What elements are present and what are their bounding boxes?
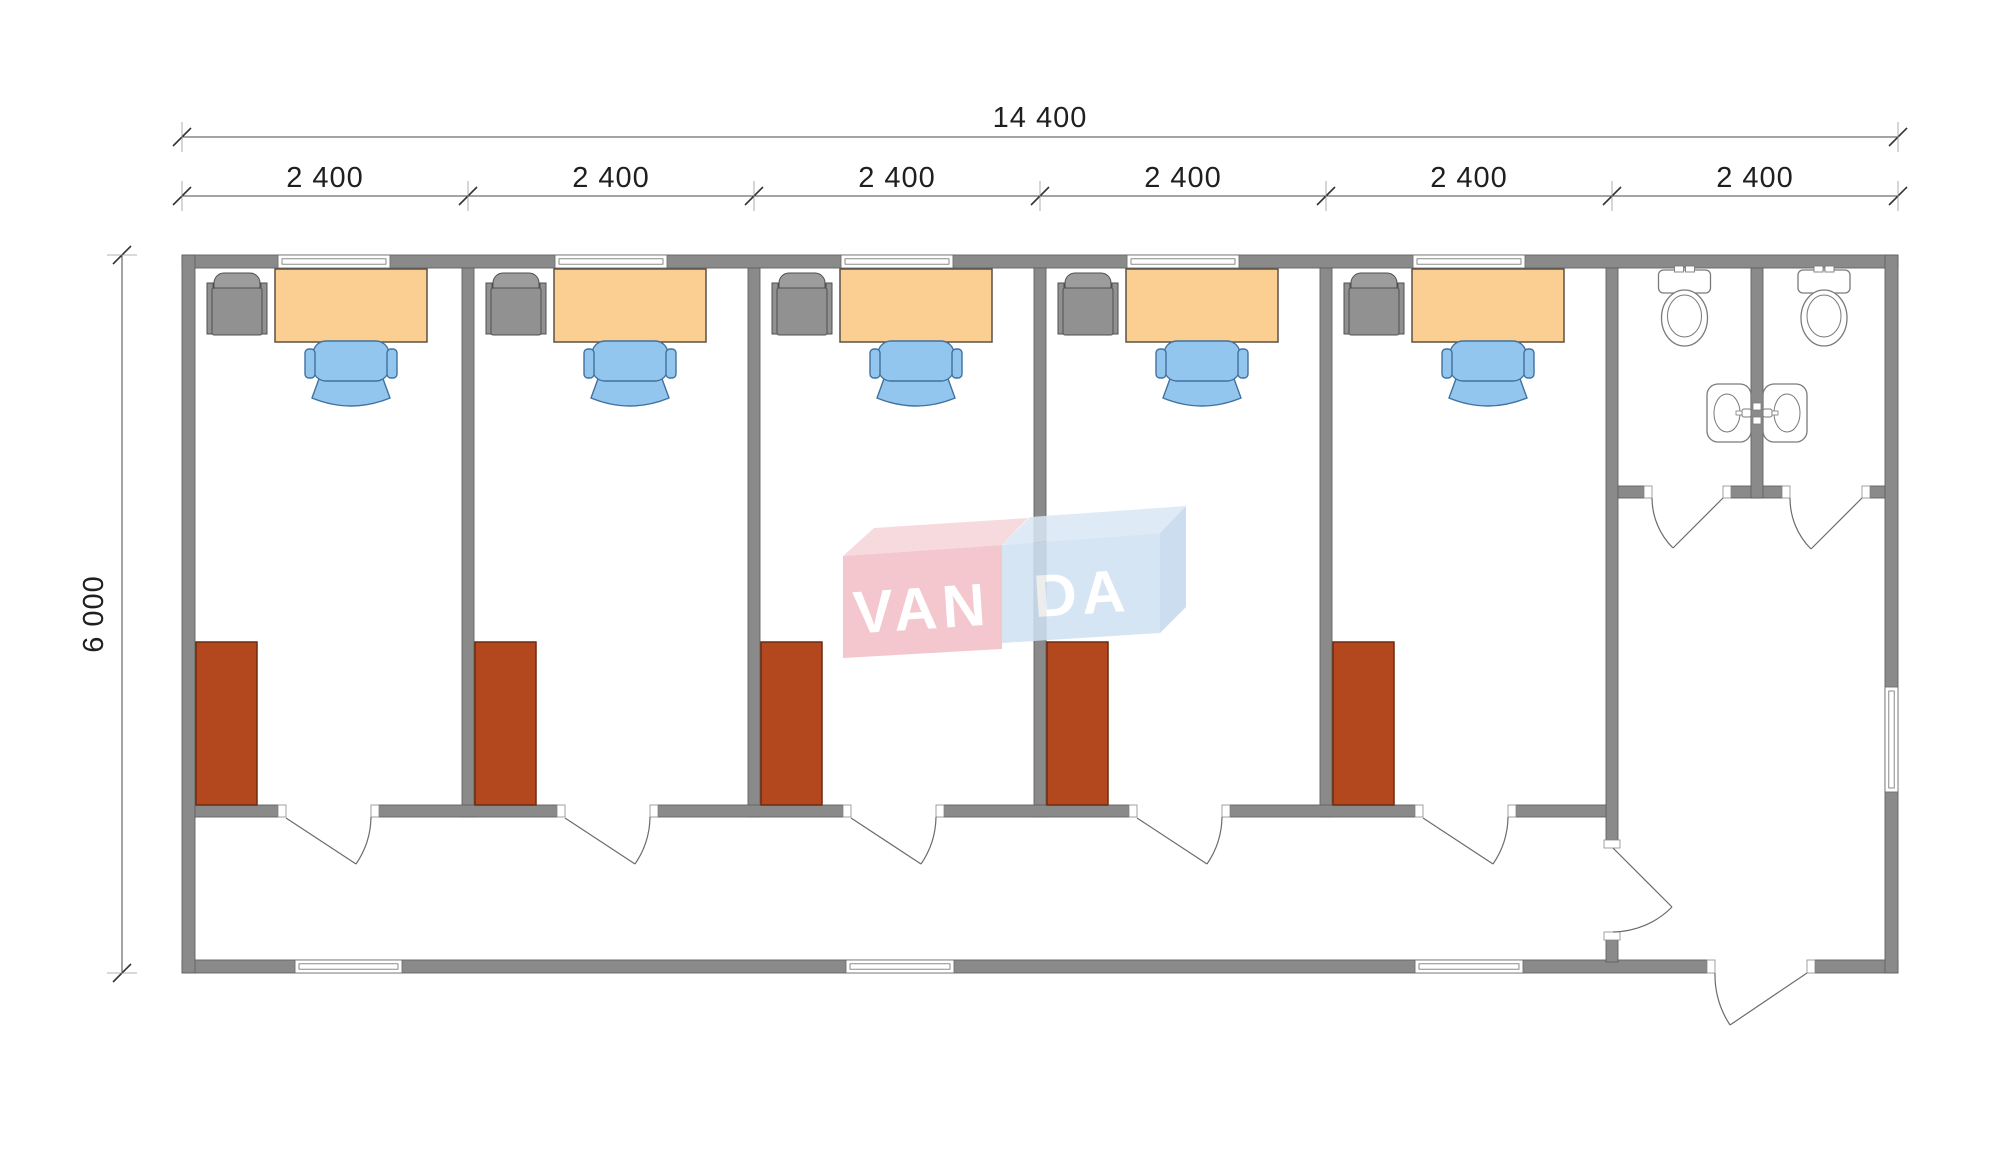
door-swing [1673,498,1723,548]
partition-wall [462,268,474,817]
door-swing [1207,817,1222,864]
toilet-stall-wall [1870,486,1885,498]
door-swing [1715,973,1730,1025]
cabinet [491,288,541,335]
corridor-wall [944,805,1129,817]
door-swing [565,818,635,864]
door-jamb [1129,805,1137,817]
door-jamb [1415,805,1423,817]
desk [840,269,992,342]
logo-text-da: DA [1031,557,1132,630]
corridor-wall [1516,805,1606,817]
chair-armrest [1524,349,1534,378]
door-swing [921,817,936,864]
outer-wall-right [1885,255,1898,973]
cabinet [212,288,262,335]
bay-dimension-label: 2 400 [858,162,936,194]
flush-button [1686,266,1695,272]
chair-armrest [1156,349,1166,378]
door-jamb [650,805,658,817]
outer-wall-left [182,255,195,973]
wardrobe [475,642,536,805]
bay-dimension-label: 2 400 [1144,162,1222,194]
pipe-connection [1753,403,1761,410]
logo-text-van: VAN [851,571,992,647]
chair-armrest [666,349,676,378]
sink-tap [1742,409,1751,417]
door-jamb [1807,960,1815,973]
brand-watermark: VAN DA [843,506,1186,658]
corridor-wall [195,805,278,817]
bay-dimension-label: 2 400 [572,162,650,194]
door-swing [356,817,371,864]
flush-button [1675,266,1684,272]
door-jamb [1222,805,1230,817]
cabinet [1063,288,1113,335]
cabinet [777,288,827,335]
wardrobe [1047,642,1108,805]
partition-wall [1606,940,1618,962]
door-jamb [1862,486,1870,498]
sink-1 [1707,384,1751,442]
partition-wall [1320,268,1332,817]
chair-armrest [584,349,594,378]
toilet-bowl [1662,290,1708,346]
door-jamb [1644,486,1652,498]
door-jamb [1707,960,1715,973]
door-swing [286,818,356,864]
toilet-2 [1798,266,1850,346]
corridor-wall [658,805,843,817]
partition-wall [1606,268,1618,840]
desk [275,269,427,342]
door-jamb [1604,840,1620,848]
corridor-wall [1230,805,1415,817]
door-jamb [557,805,565,817]
window-glazing [282,259,386,264]
dimension-label-total: 14 400 [993,102,1088,134]
cabinet [1349,288,1399,335]
door-swing [1652,498,1673,548]
window-glazing [559,259,663,264]
sink-2 [1763,384,1807,442]
window-glazing [1419,964,1519,969]
bay-dimension-label: 2 400 [1716,162,1794,194]
chair-armrest [305,349,315,378]
door-swing [1730,973,1807,1025]
floor-plan-canvas: 14 400 6 000 2 4002 4002 4002 4002 4002 … [0,0,2000,1172]
chair-armrest [387,349,397,378]
height-dimension-label: 6 000 [78,575,110,653]
office-room-1 [196,269,427,805]
partition-wall [748,268,760,817]
chair-armrest [1238,349,1248,378]
flush-button [1825,266,1834,272]
door-jamb [1508,805,1516,817]
pipe-connection [1753,417,1761,424]
door-swing [1613,848,1672,907]
wardrobe [196,642,257,805]
toilet-1 [1659,266,1711,346]
office-room-5 [1333,269,1564,805]
door-jamb [843,805,851,817]
window-glazing [845,259,949,264]
door-swing [1423,818,1493,864]
door-jamb [1604,932,1620,940]
window-glazing [850,964,950,969]
toilet-stall-wall [1618,486,1644,498]
door-jamb [1782,486,1790,498]
bay-dimension-label: 2 400 [286,162,364,194]
door-jamb [1723,486,1731,498]
outer-wall-top [182,255,1898,268]
door-jamb [371,805,379,817]
office-chair [1450,341,1526,381]
window-glazing [1889,691,1894,788]
office-chair [1164,341,1240,381]
wardrobe [1333,642,1394,805]
door-swing [1790,498,1811,549]
sink-tap-handle [1736,411,1742,415]
door-jamb [936,805,944,817]
office-chair [313,341,389,381]
window-glazing [1131,259,1235,264]
flush-button [1814,266,1823,272]
office-chair [592,341,668,381]
sink-tap-handle [1772,411,1778,415]
door-swing [1811,498,1862,549]
office-room-2 [475,269,706,805]
desk [1126,269,1278,342]
door-swing [1613,907,1672,932]
toilet-divider-wall [1751,268,1763,498]
doors-windows-layer [278,255,1898,1025]
office-chair [878,341,954,381]
chair-armrest [870,349,880,378]
desk [554,269,706,342]
door-swing [1493,817,1508,864]
sink-tap [1763,409,1772,417]
wardrobe [761,642,822,805]
corridor-wall [379,805,557,817]
door-swing [635,817,650,864]
window-glazing [1417,259,1521,264]
desk [1412,269,1564,342]
toilet-bowl [1801,290,1847,346]
door-swing [851,818,921,864]
window-glazing [299,964,398,969]
chair-armrest [952,349,962,378]
bay-dimension-label: 2 400 [1430,162,1508,194]
chair-armrest [1442,349,1452,378]
floor-plan: 14 400 6 000 2 4002 4002 4002 4002 4002 … [0,0,2000,1172]
door-jamb [278,805,286,817]
door-swing [1137,818,1207,864]
